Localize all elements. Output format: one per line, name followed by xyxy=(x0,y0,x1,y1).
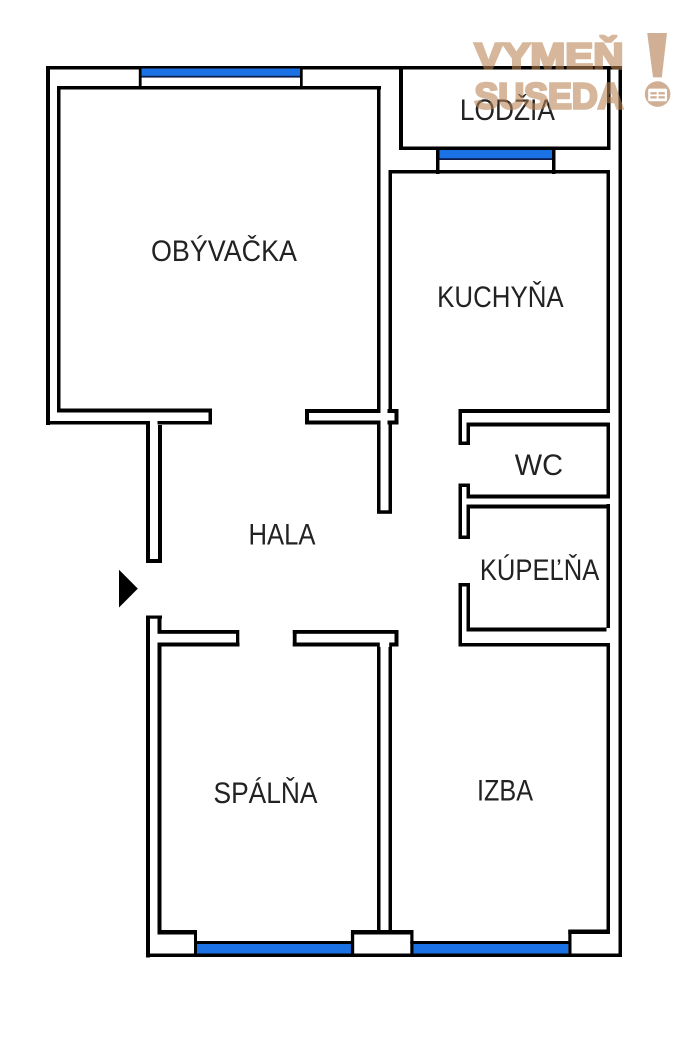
svg-text:KUCHYŇA: KUCHYŇA xyxy=(437,281,564,314)
svg-text:OBÝVAČKA: OBÝVAČKA xyxy=(151,234,297,268)
svg-text:SUSEDA: SUSEDA xyxy=(475,75,624,116)
svg-text:SPÁLŇA: SPÁLŇA xyxy=(214,777,318,810)
svg-text:VYMEŇ: VYMEŇ xyxy=(475,34,624,76)
svg-text:HALA: HALA xyxy=(249,519,316,552)
svg-text:WC: WC xyxy=(515,449,563,482)
svg-text:KÚPEĽŇA: KÚPEĽŇA xyxy=(480,554,600,587)
svg-text:IZBA: IZBA xyxy=(477,775,533,808)
